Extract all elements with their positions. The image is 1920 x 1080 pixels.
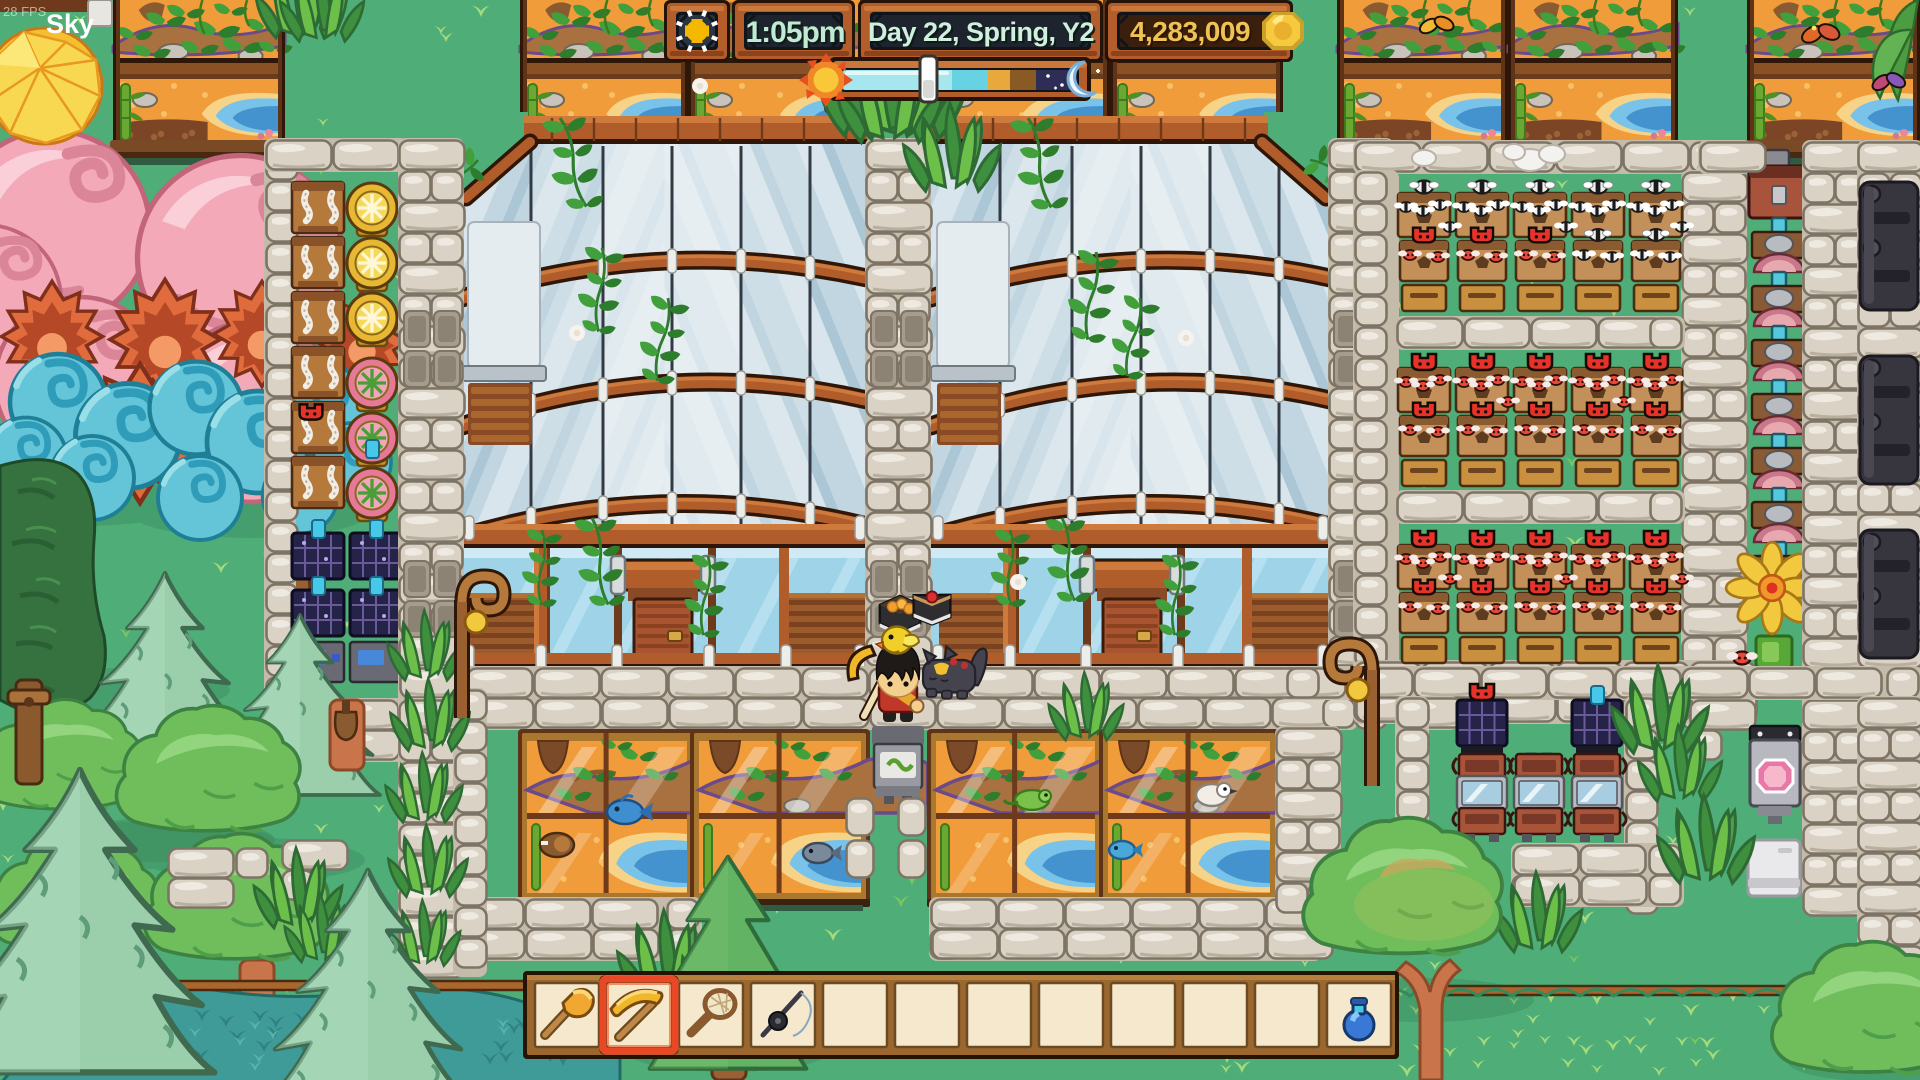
svg-text:Day 22, Spring, Y2: Day 22, Spring, Y2 xyxy=(868,17,1094,47)
svg-text:4,283,009: 4,283,009 xyxy=(1130,16,1250,47)
svg-text:28 FPS: 28 FPS xyxy=(3,4,47,19)
svg-text:Sky: Sky xyxy=(46,9,94,39)
svg-text:1:05pm: 1:05pm xyxy=(745,16,844,49)
